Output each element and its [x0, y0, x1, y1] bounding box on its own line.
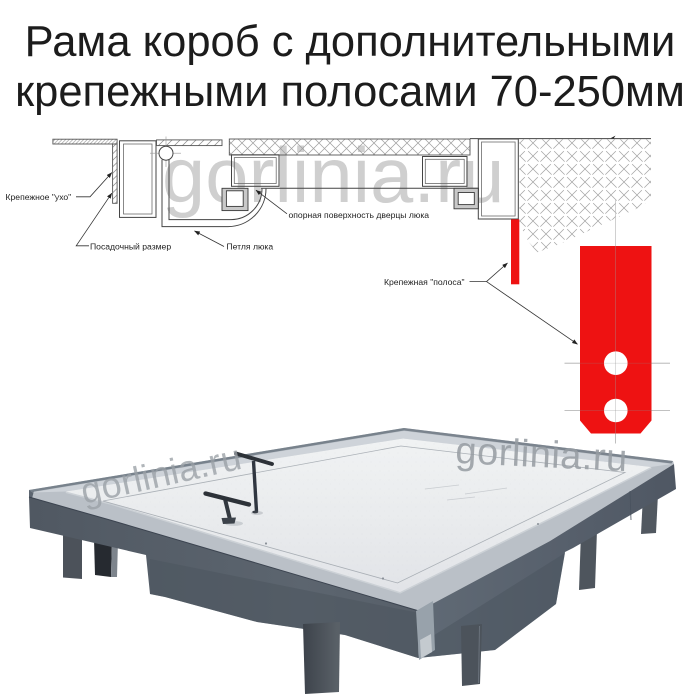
svg-text:Крепежная "полоса": Крепежная "полоса" [384, 277, 465, 287]
svg-text:Петля люка: Петля люка [227, 242, 274, 252]
svg-text:Крепежное "ухо": Крепежное "ухо" [6, 192, 72, 202]
svg-text:опорная поверхность дверцы люк: опорная поверхность дверцы люка [289, 210, 430, 220]
svg-text:gorlinia.ru: gorlinia.ru [455, 430, 629, 480]
svg-text:Посадочный размер: Посадочный размер [90, 242, 171, 252]
